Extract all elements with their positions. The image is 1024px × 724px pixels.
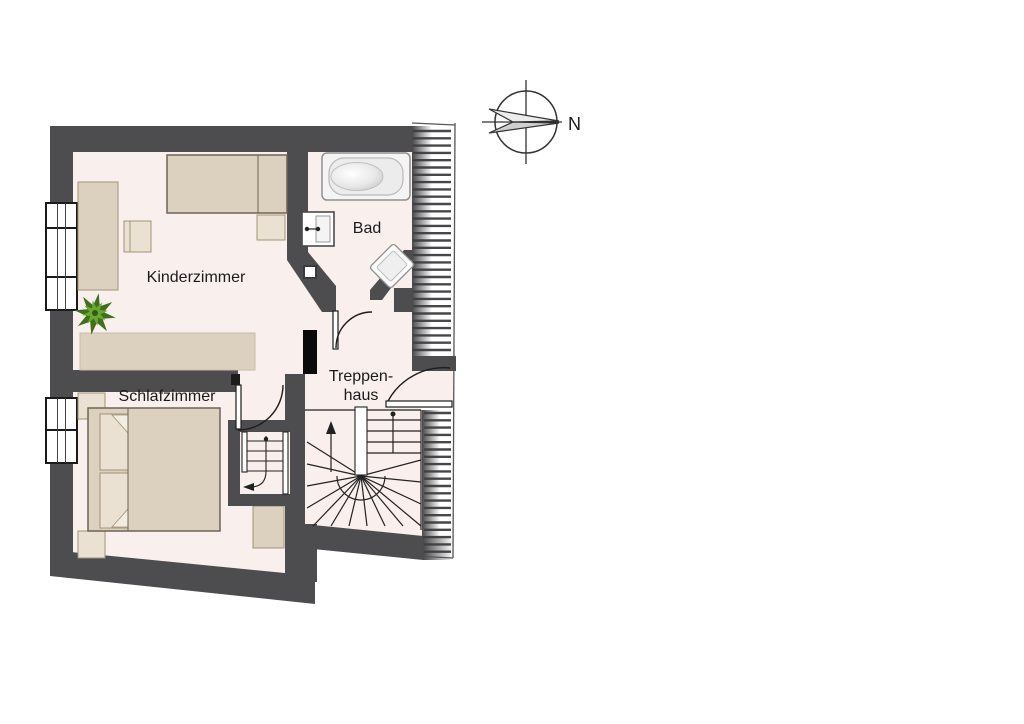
- desk: [78, 182, 118, 290]
- chair: [124, 221, 151, 252]
- wardrobe: [253, 506, 284, 548]
- label-kinderzimmer: Kinderzimmer: [147, 269, 246, 286]
- hatch-shadow-top: [412, 126, 432, 356]
- window-schlafzimmer: [46, 398, 77, 463]
- door-hinge-block: [231, 374, 240, 385]
- wall-top: [50, 126, 412, 152]
- stair-entry-dot: [391, 412, 396, 417]
- compass-needle-lower: [489, 122, 559, 133]
- roof-edge-line: [453, 123, 455, 558]
- floor-plan-canvas: Kinderzimmer Schlafzimmer Bad Treppen- h…: [0, 0, 1024, 724]
- closet-staircase: [228, 420, 302, 506]
- nightstand-bottom: [78, 531, 105, 558]
- door-leaf: [333, 311, 338, 349]
- closet-rail-left: [242, 432, 247, 472]
- compass-rose-icon: N: [482, 80, 581, 164]
- label-bad: Bad: [353, 220, 381, 237]
- label-schlafzimmer: Schlafzimmer: [119, 388, 217, 405]
- closet-stair-dot: [264, 437, 268, 441]
- sink-icon: [302, 212, 334, 246]
- wall-left: [50, 126, 73, 560]
- roof-edge-top: [412, 123, 455, 125]
- floor-plan-page: Kinderzimmer Schlafzimmer Bad Treppen- h…: [0, 0, 1024, 724]
- window-kinderzimmer: [46, 203, 77, 310]
- wall-bad-right-jamb: [394, 288, 412, 312]
- sideboard: [80, 333, 255, 370]
- label-treppenhaus-line2: haus: [344, 387, 379, 404]
- single-bed: [167, 155, 287, 213]
- bathtub-icon: [322, 153, 410, 200]
- wall-black-pier: [303, 330, 317, 374]
- hatch-shadow-bottom: [422, 410, 440, 538]
- closet-rail-right: [283, 432, 288, 494]
- vent-shaft: [304, 266, 316, 278]
- nightstand-kinderzimmer: [257, 215, 285, 240]
- compass-needle-upper: [489, 109, 559, 122]
- door-leaf: [386, 401, 452, 407]
- door-leaf: [236, 385, 241, 429]
- stair-newel: [355, 407, 367, 475]
- compass-north-label: N: [568, 114, 581, 134]
- label-treppenhaus-line1: Treppen-: [329, 368, 393, 385]
